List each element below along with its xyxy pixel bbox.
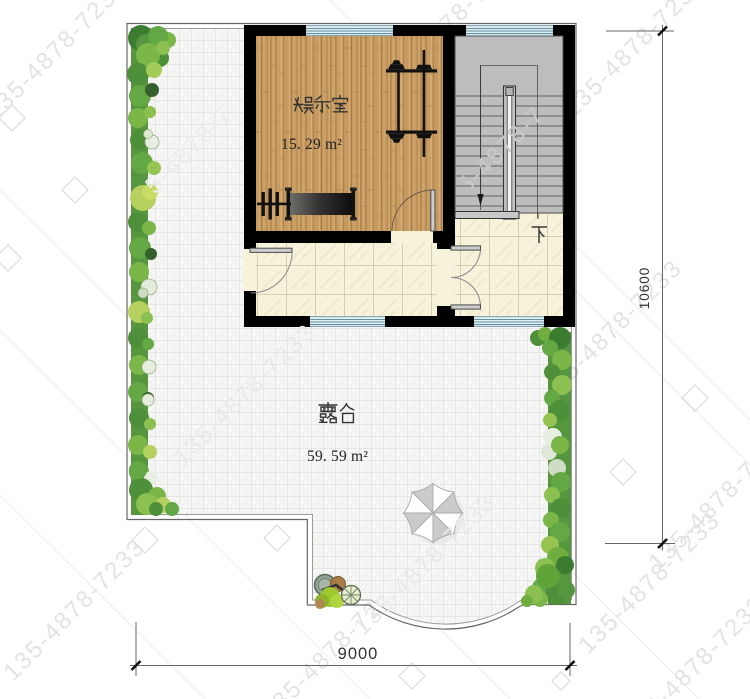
svg-text:59. 59 m²: 59. 59 m² — [307, 448, 368, 465]
svg-text:15. 29 m²: 15. 29 m² — [281, 136, 342, 153]
svg-text:10600: 10600 — [637, 267, 652, 310]
svg-text:9000: 9000 — [338, 645, 379, 663]
